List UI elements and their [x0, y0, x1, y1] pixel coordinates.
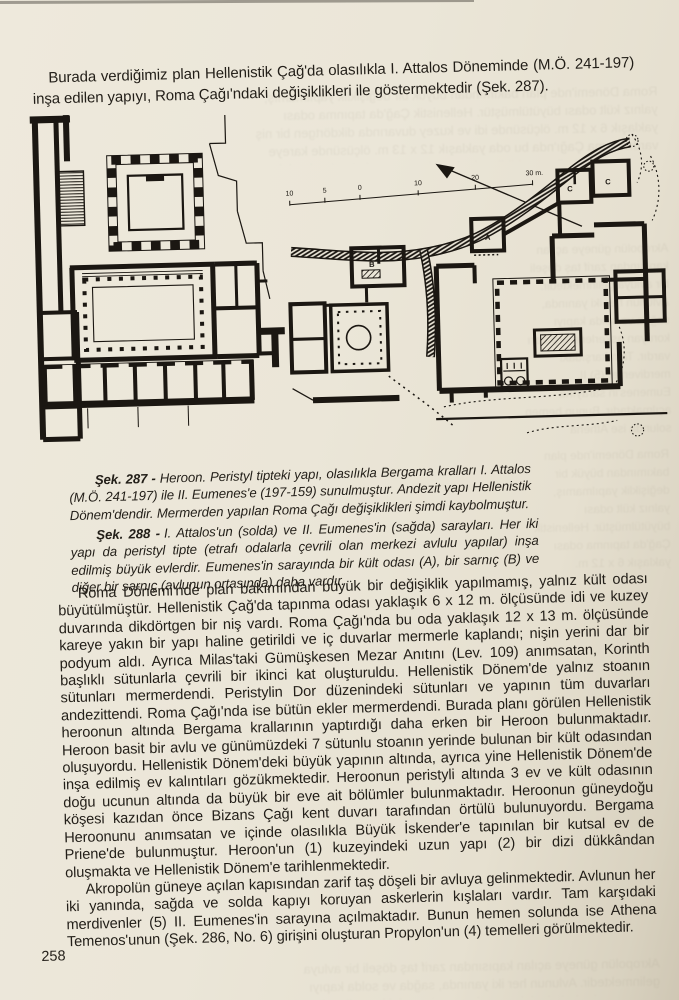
body-paragraph-1: Roma Dönemi'nde plan bakımından büyük bi…	[58, 571, 656, 882]
peristyle-columns	[497, 280, 608, 383]
niche	[146, 175, 164, 182]
palaces-plan-drawing: 10 5 0 10 20 30 m.	[278, 127, 670, 457]
page-content: Burada verdiğimiz plan Hellenistik Çağ'd…	[0, 0, 679, 1000]
scale-tick: 10	[414, 180, 422, 187]
terrain-contours	[429, 134, 668, 442]
body-text: Roma Dönemi'nde plan bakımından büyük bi…	[58, 571, 657, 952]
scale-bar: 10 5 0 10 20 30 m.	[285, 170, 544, 206]
main-courtyard	[70, 264, 217, 360]
cistern-hatch	[541, 334, 576, 351]
caption-label: Şek. 288 -	[96, 526, 160, 543]
body-paragraph-2: Akropolün güneye açılan kapısından zarif…	[65, 867, 657, 952]
book-page-photo: Roma Dönemi'nde plan bakımından büyük bi…	[0, 0, 679, 1000]
heroon-plan-drawing	[17, 99, 290, 456]
scale-tick: 30 m.	[525, 170, 543, 177]
room-label-c-2: C	[605, 177, 611, 186]
page-number: 258	[41, 948, 66, 965]
east-rooms	[215, 263, 270, 357]
intro-paragraph: Burada verdiğimiz plan Hellenistik Çağ'd…	[32, 53, 635, 110]
figure-palaces-plan: 10 5 0 10 20 30 m.	[278, 127, 670, 457]
room-label-c-1: C	[567, 184, 573, 193]
figure-heroon-plan	[17, 99, 290, 456]
eumenes-palace: A C C	[434, 160, 667, 403]
hatched-room	[57, 171, 85, 226]
cistern-b-hatch	[362, 270, 380, 279]
shops-row	[42, 360, 255, 430]
room-label-a: A	[485, 233, 491, 242]
survey-boundary-lines	[209, 114, 270, 300]
scale-tick: 0	[358, 185, 362, 192]
caption-sek-287: Şek. 287 -Heroon. Peristyl tipteki yapı,…	[69, 460, 532, 524]
room-label-b: B	[369, 260, 375, 269]
scale-tick: 5	[323, 188, 327, 195]
courtyard-cistern-circle	[346, 325, 371, 350]
scale-tick: 10	[286, 191, 294, 198]
upper-peristyl-colonnade	[107, 153, 205, 251]
caption-label: Şek. 287 -	[95, 471, 156, 488]
southeast-walls	[261, 331, 286, 368]
